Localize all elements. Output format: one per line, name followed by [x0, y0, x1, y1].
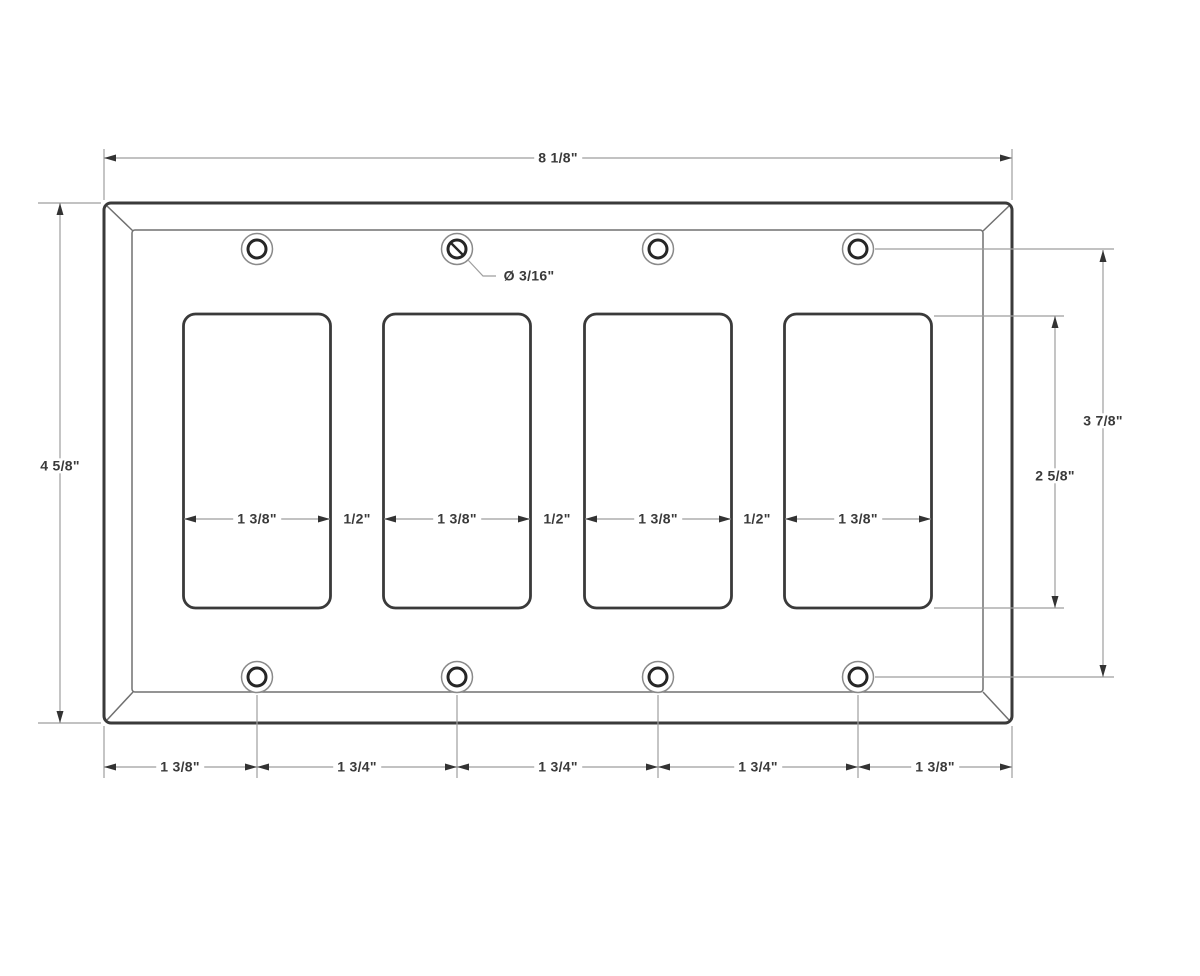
arrowhead-right [646, 764, 658, 771]
arrowhead-up [57, 203, 64, 215]
rocker-opening-2 [384, 314, 531, 608]
arrowhead-left [457, 764, 469, 771]
screw-hole-bottom-3 [643, 662, 674, 693]
arrowhead-left [104, 764, 116, 771]
dim-label-overall-width: 8 1/8" [534, 150, 582, 165]
rocker-opening-3 [585, 314, 732, 608]
dim-label-bottom-4: 1 3/4" [734, 759, 782, 774]
arrowhead-right [1000, 155, 1012, 162]
dim-label-opening-width-3: 1 3/8" [634, 511, 682, 526]
dim-label-opening-width-2: 1 3/8" [433, 511, 481, 526]
dim-label-hole-diameter: Ø 3/16" [500, 268, 559, 283]
dim-label-bottom-1: 1 3/8" [156, 759, 204, 774]
arrowhead-left [104, 155, 116, 162]
dim-label-screw-span: 3 7/8" [1079, 413, 1127, 428]
screw-hole-bottom-1 [242, 662, 273, 693]
arrowhead-right [846, 764, 858, 771]
arrowhead-right [1000, 764, 1012, 771]
screw-hole-top-1 [242, 234, 273, 265]
dim-label-opening-width-4: 1 3/8" [834, 511, 882, 526]
arrowhead-right [445, 764, 457, 771]
dim-label-bottom-2: 1 3/4" [333, 759, 381, 774]
screw-hole-bottom-2 [442, 662, 473, 693]
arrowhead-left [257, 764, 269, 771]
drawing-linework [0, 0, 1200, 976]
technical-drawing: 8 1/8" 4 5/8" 3 7/8" 2 5/8" Ø 3/16" 1 3/… [0, 0, 1200, 976]
screw-hole-top-2 [442, 234, 473, 265]
arrowhead-down [57, 711, 64, 723]
dim-label-gap-2: 1/2" [539, 511, 574, 526]
rocker-opening-4 [785, 314, 932, 608]
screw-hole-top-3 [643, 234, 674, 265]
dim-label-opening-width-1: 1 3/8" [233, 511, 281, 526]
dim-label-gap-3: 1/2" [739, 511, 774, 526]
dim-label-bottom-5: 1 3/8" [911, 759, 959, 774]
dim-label-overall-height: 4 5/8" [36, 458, 84, 473]
arrowhead-down [1052, 596, 1059, 608]
arrowhead-down [1100, 665, 1107, 677]
dim-label-gap-1: 1/2" [339, 511, 374, 526]
screw-hole-top-4 [843, 234, 874, 265]
screw-hole-bottom-4 [843, 662, 874, 693]
dim-label-bottom-3: 1 3/4" [534, 759, 582, 774]
arrowhead-left [658, 764, 670, 771]
arrowhead-right [245, 764, 257, 771]
dim-label-opening-height: 2 5/8" [1031, 468, 1079, 483]
arrowhead-up [1052, 316, 1059, 328]
rocker-opening-1 [184, 314, 331, 608]
arrowhead-left [858, 764, 870, 771]
arrowhead-up [1100, 250, 1107, 262]
